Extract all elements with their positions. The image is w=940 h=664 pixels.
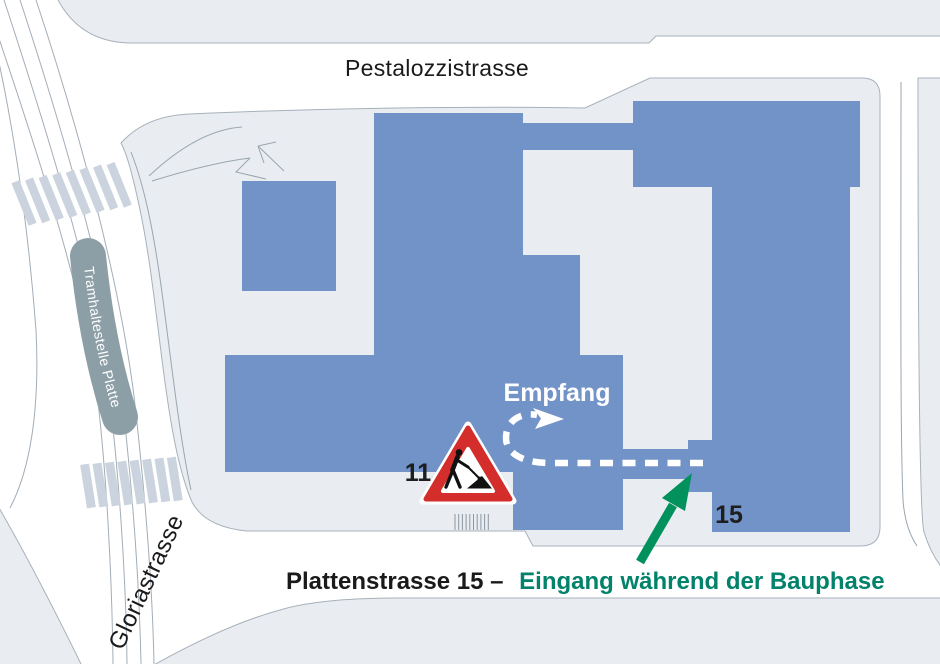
caption-entrance-note: Eingang während der Bauphase: [519, 568, 884, 595]
building-11-north-slab: [374, 113, 523, 257]
building-15-slab: [712, 187, 850, 532]
building-11-lower-tab: [513, 471, 623, 530]
building-bridge-arm: [523, 123, 633, 150]
caption-address: Plattenstrasse 15 –: [286, 568, 503, 595]
site-map-canvas: Tramhaltestelle Platte: [0, 0, 940, 664]
caption: Plattenstrasse 15 – Eingang während der …: [286, 568, 885, 595]
site-map: Tramhaltestelle Platte: [0, 0, 940, 664]
parcel-east: [918, 78, 940, 568]
street-label-pestalozzistrasse: Pestalozzistrasse: [345, 55, 529, 81]
building-15-number: 15: [715, 501, 743, 529]
building-north-east-block: [633, 101, 860, 187]
building-annex-square: [242, 181, 336, 291]
building-11-mid-slab: [374, 255, 580, 356]
building-11-number: 11: [405, 459, 432, 487]
reception-label: Empfang: [504, 379, 611, 407]
building-11-south-wing: [225, 355, 623, 472]
